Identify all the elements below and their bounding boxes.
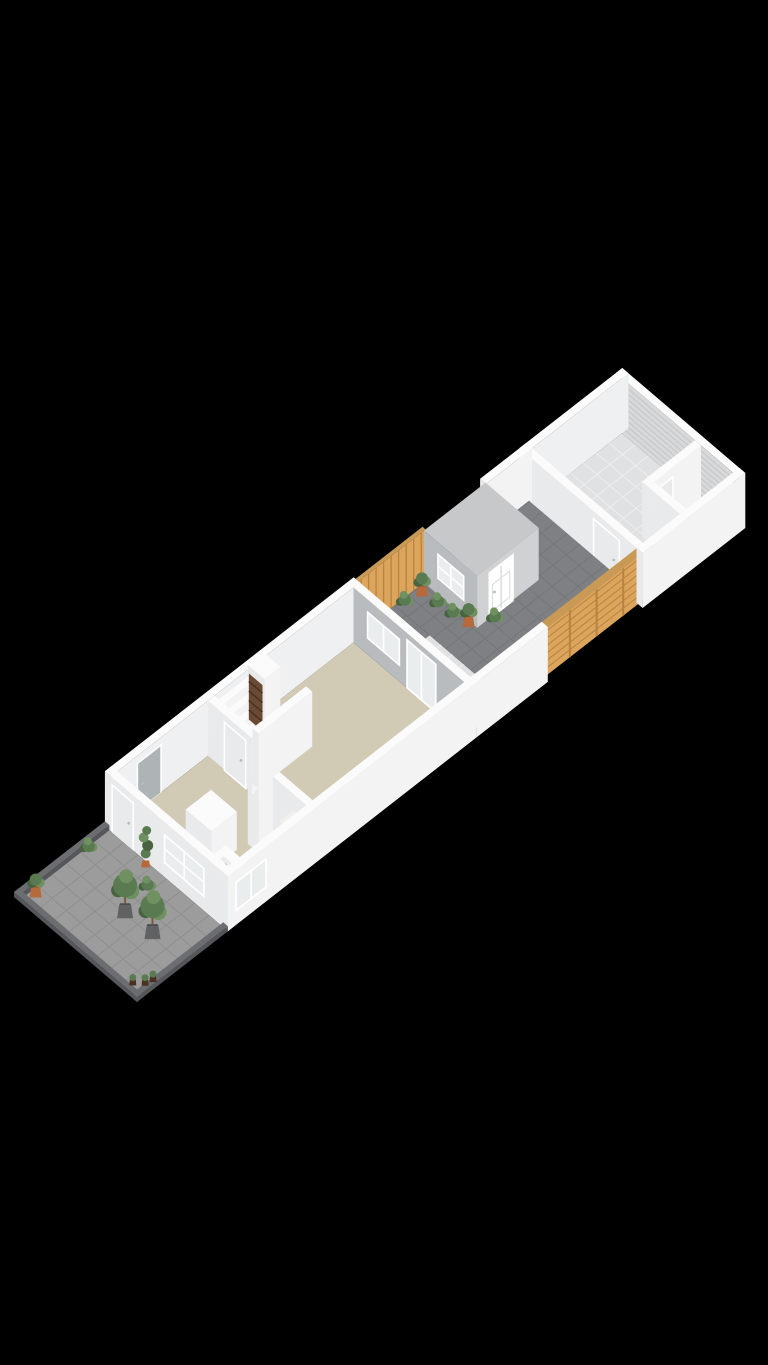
floorplan-page (0, 0, 768, 1365)
terrace-small-pot (142, 974, 149, 986)
floorplan-3d-view (0, 0, 768, 1365)
terrace-small-pot (129, 974, 136, 986)
terrace-small-pot (150, 971, 157, 983)
